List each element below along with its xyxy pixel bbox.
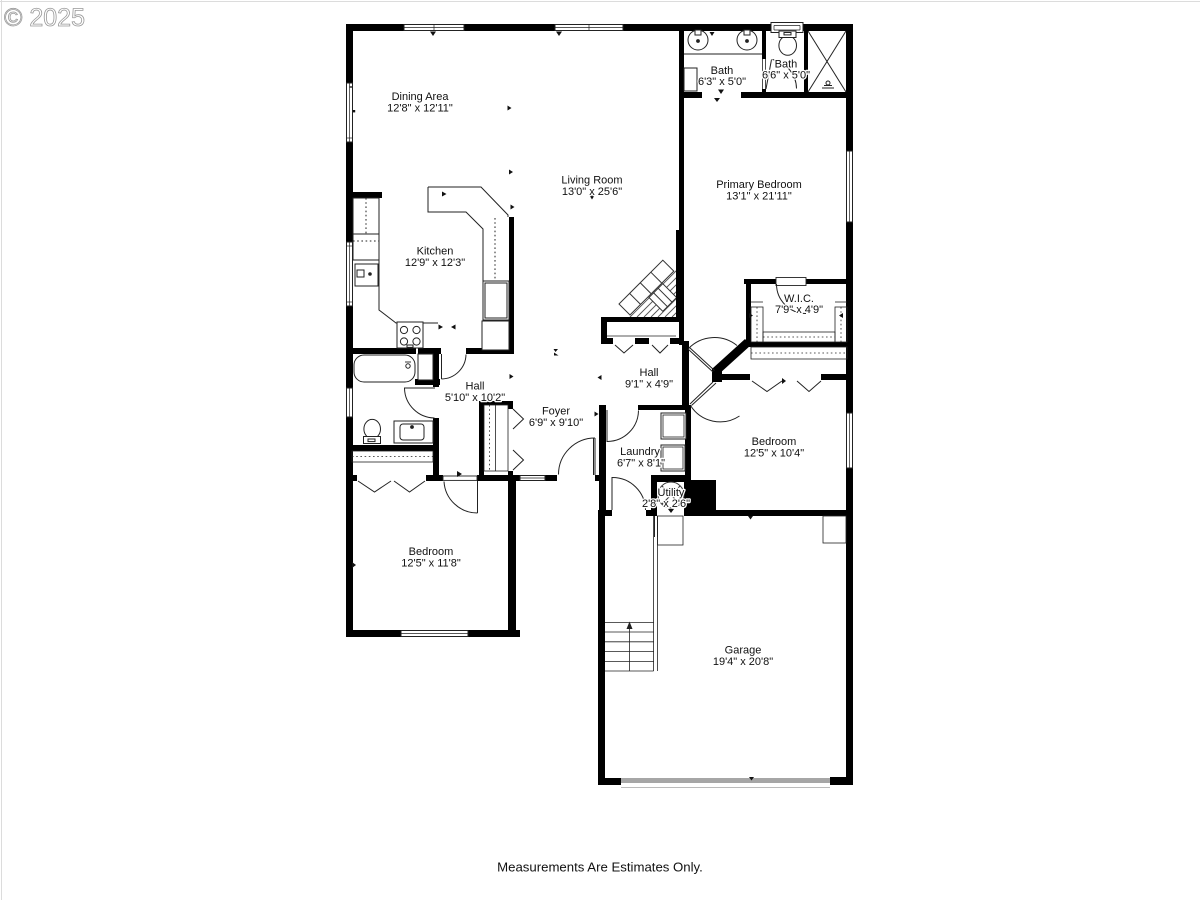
svg-text:Kitchen: Kitchen <box>417 246 454 258</box>
svg-text:Living Room: Living Room <box>561 175 622 187</box>
svg-text:5'10" x 10'2": 5'10" x 10'2" <box>445 392 505 404</box>
svg-text:© 2025: © 2025 <box>4 4 85 32</box>
svg-text:Bedroom: Bedroom <box>409 546 454 558</box>
svg-text:Primary Bedroom: Primary Bedroom <box>716 179 802 191</box>
svg-text:12'5" x 10'4": 12'5" x 10'4" <box>744 448 804 460</box>
svg-text:6'9" x 9'10": 6'9" x 9'10" <box>529 417 583 429</box>
svg-text:9'1" x 4'9": 9'1" x 4'9" <box>625 379 673 391</box>
svg-text:Foyer: Foyer <box>542 406 570 418</box>
svg-text:Measurements Are Estimates Onl: Measurements Are Estimates Only. <box>497 860 703 875</box>
svg-text:Hall: Hall <box>640 367 659 379</box>
svg-text:6'7" x 8'1": 6'7" x 8'1" <box>617 458 665 470</box>
svg-text:7'9" x 4'9": 7'9" x 4'9" <box>775 304 823 316</box>
svg-text:13'0" x 25'6": 13'0" x 25'6" <box>562 186 622 198</box>
svg-text:Laundry: Laundry <box>620 446 660 458</box>
svg-text:Hall: Hall <box>466 381 485 393</box>
svg-text:2'8" x 2'6": 2'8" x 2'6" <box>642 498 690 510</box>
svg-text:12'8" x 12'11": 12'8" x 12'11" <box>387 103 453 115</box>
svg-text:13'1" x 21'11": 13'1" x 21'11" <box>726 191 792 203</box>
svg-text:Bedroom: Bedroom <box>752 436 797 448</box>
svg-text:12'5" x 11'8": 12'5" x 11'8" <box>401 558 461 570</box>
svg-text:Garage: Garage <box>725 645 762 657</box>
svg-text:6'6" x 5'0": 6'6" x 5'0" <box>762 70 810 82</box>
svg-text:19'4" x 20'8": 19'4" x 20'8" <box>713 656 773 668</box>
svg-text:Dining Area: Dining Area <box>392 91 450 103</box>
svg-text:6'3" x 5'0": 6'3" x 5'0" <box>698 76 746 88</box>
svg-text:12'9" x 12'3": 12'9" x 12'3" <box>405 257 465 269</box>
